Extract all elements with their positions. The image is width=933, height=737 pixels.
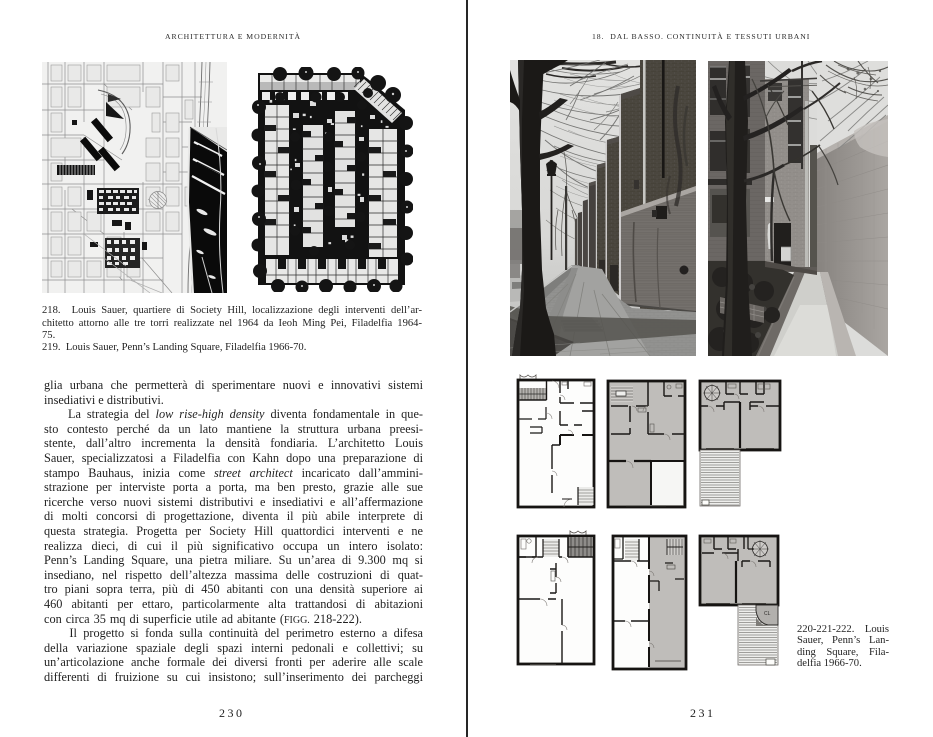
svg-text:CL: CL: [764, 611, 771, 617]
